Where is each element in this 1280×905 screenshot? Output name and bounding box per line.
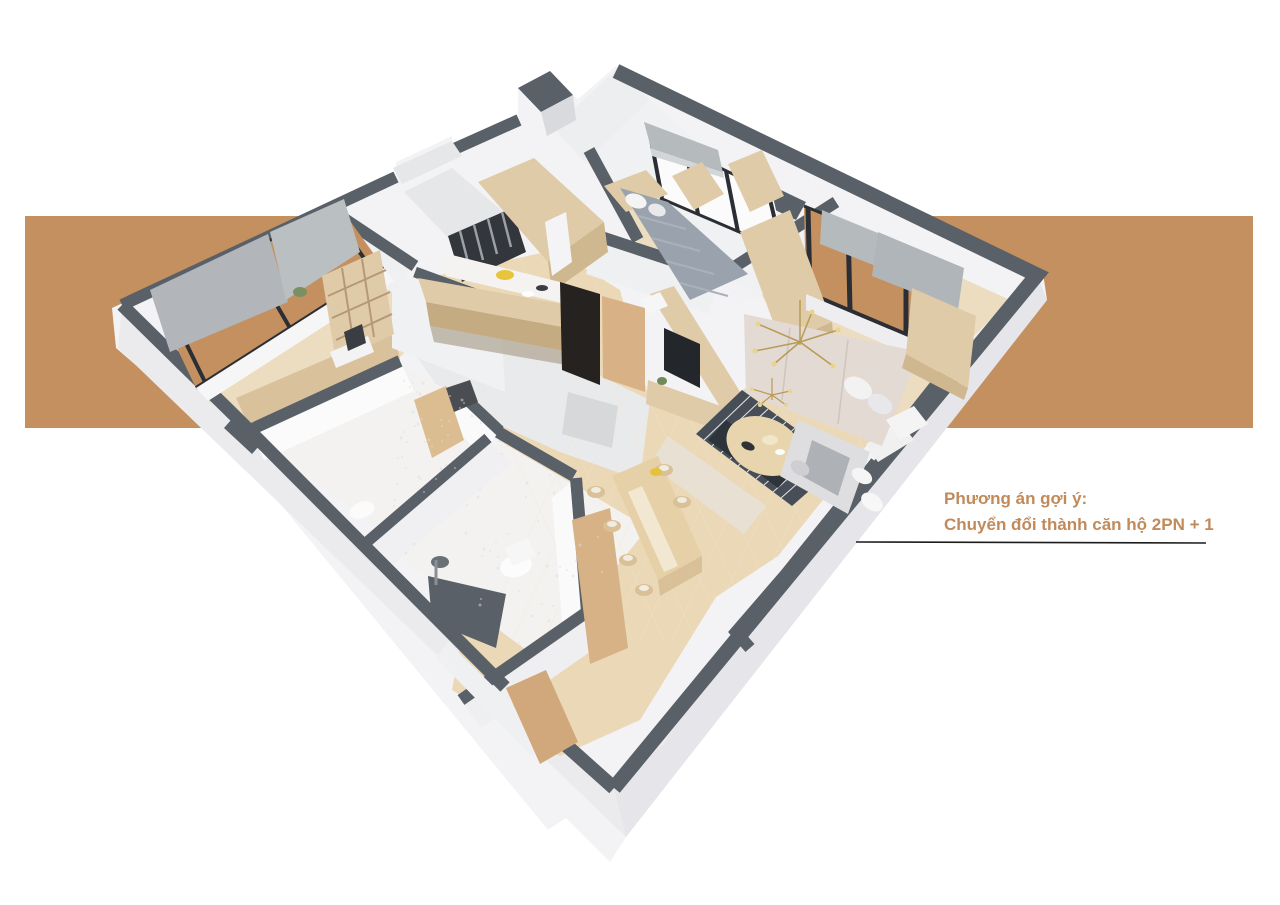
svg-text:Phương án gợi ý:: Phương án gợi ý: <box>944 489 1087 508</box>
svg-text:Chuyển đổi thành căn hộ 2PN +: Chuyển đổi thành căn hộ 2PN + 1 <box>944 515 1214 534</box>
